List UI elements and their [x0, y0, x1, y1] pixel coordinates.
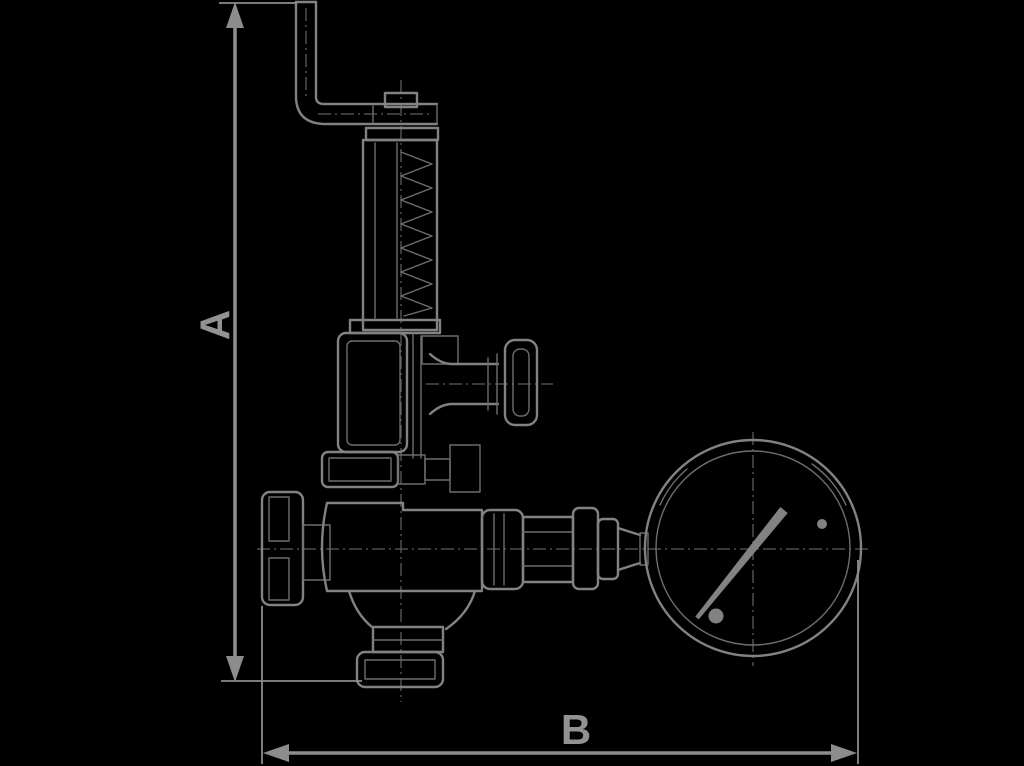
drawing-canvas: A B [0, 0, 1024, 766]
gauge-dial-screw-left [709, 609, 724, 624]
housing-tube [363, 140, 437, 330]
handwheel-rim [505, 340, 537, 425]
dimension-b-label: B [561, 706, 591, 753]
gauge-needle [695, 507, 787, 619]
body-right-shoulder [450, 445, 480, 492]
outlet-funnel-left [349, 591, 372, 627]
cap-plate [366, 128, 438, 140]
valve-technical-drawing: A B [0, 0, 1024, 766]
handwheel-hub [513, 349, 529, 416]
valve-body [322, 503, 482, 629]
dimension-a-label: A [192, 310, 239, 340]
spring-bonnet [338, 333, 458, 458]
outlet-funnel-right [446, 591, 475, 629]
body-left-profile [322, 503, 327, 591]
spring-coils [401, 152, 432, 316]
dimension-a-arrow-down [226, 656, 244, 682]
dimension-b-arrow-right [831, 744, 857, 762]
inlet-neck [303, 525, 330, 580]
gauge-dial-screw-right [817, 519, 827, 529]
dimension-a-arrow-up [226, 2, 244, 28]
inlet-flange [262, 492, 330, 605]
outlet-flange [357, 627, 443, 687]
centerlines [257, 8, 872, 702]
adjustment-handwheel [430, 340, 537, 425]
spring-housing [350, 93, 440, 333]
dimension-b-arrow-left [263, 744, 289, 762]
